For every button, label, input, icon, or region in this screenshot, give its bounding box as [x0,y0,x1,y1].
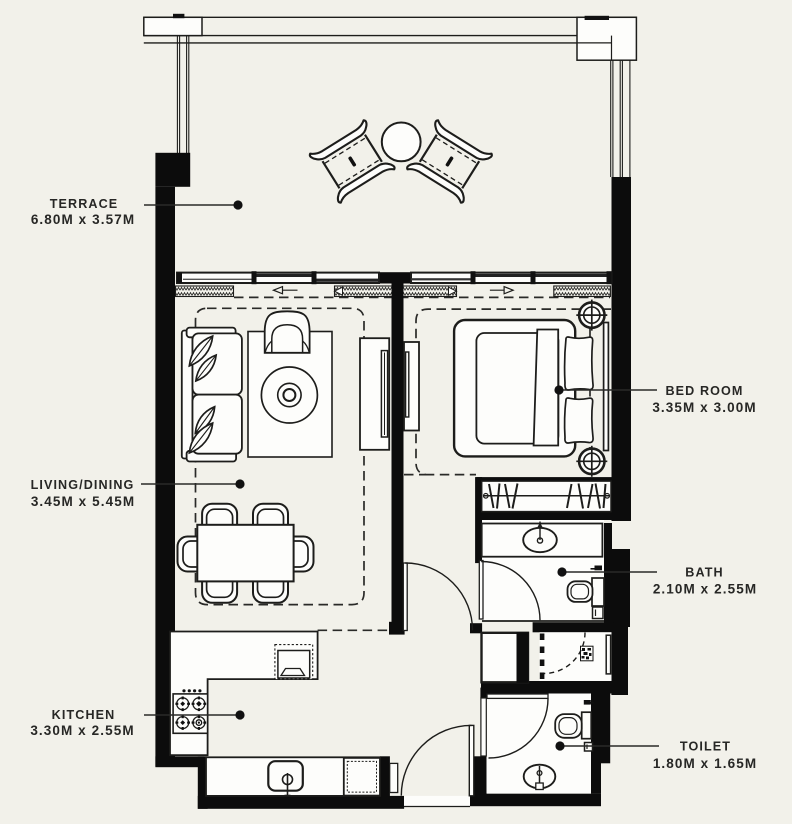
svg-text:KITCHEN: KITCHEN [52,708,116,722]
svg-text:LIVING/DINING: LIVING/DINING [31,478,135,492]
svg-text:TERRACE: TERRACE [50,197,119,211]
svg-text:6.80M x 3.57M: 6.80M x 3.57M [31,212,135,227]
svg-text:BED ROOM: BED ROOM [665,384,743,398]
svg-text:BATH: BATH [685,566,723,580]
svg-text:2.10M x 2.55M: 2.10M x 2.55M [653,582,757,597]
svg-text:TOILET: TOILET [680,740,731,754]
svg-text:1.80M x 1.65M: 1.80M x 1.65M [653,756,757,771]
svg-text:3.30M x 2.55M: 3.30M x 2.55M [30,723,134,738]
svg-text:3.45M x 5.45M: 3.45M x 5.45M [31,494,135,509]
svg-text:3.35M x 3.00M: 3.35M x 3.00M [652,400,756,415]
